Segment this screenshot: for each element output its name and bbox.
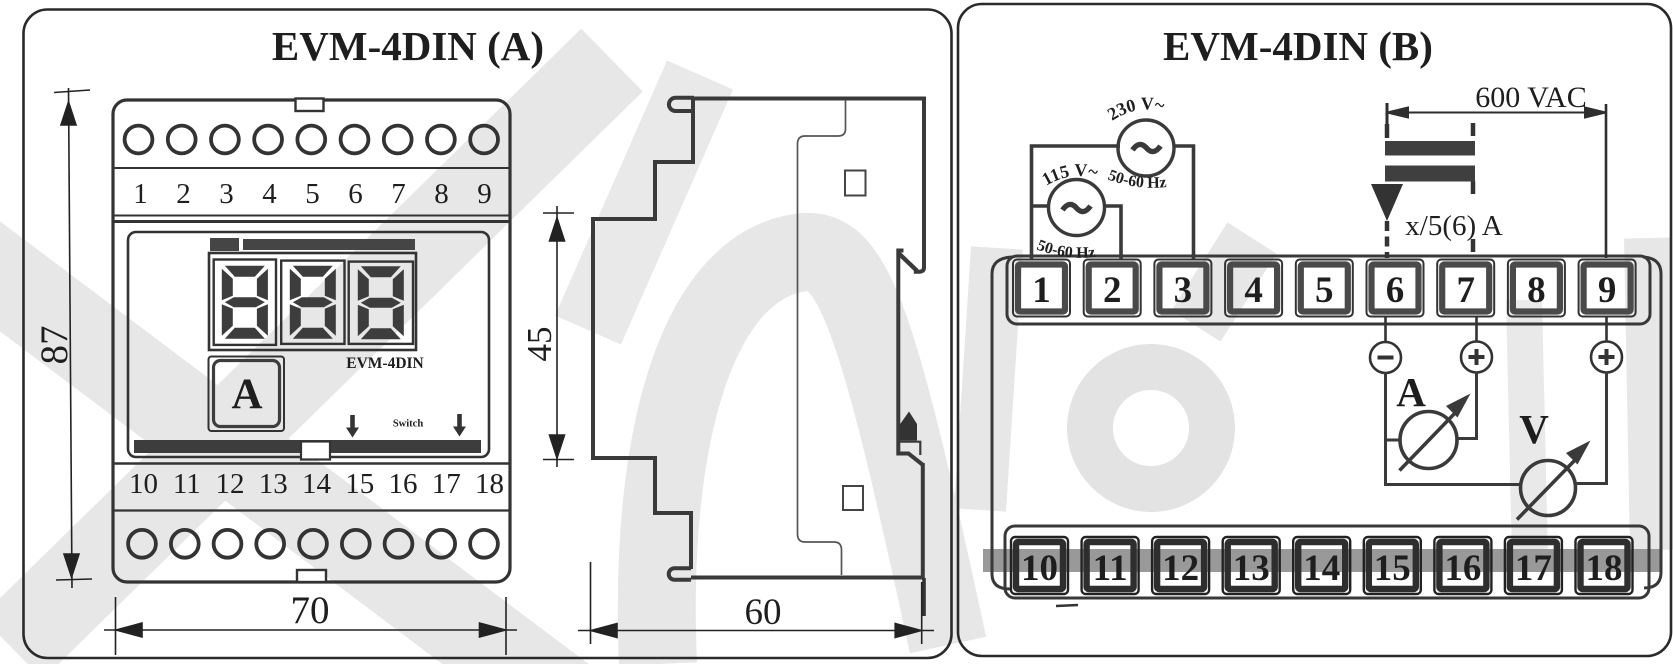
svg-text:11: 11 [1093, 548, 1128, 589]
svg-text:6: 6 [348, 178, 363, 210]
svg-text:1: 1 [1032, 270, 1051, 311]
svg-text:3: 3 [1174, 270, 1193, 311]
svg-text:87: 87 [33, 326, 76, 365]
svg-text:45: 45 [520, 327, 559, 362]
svg-text:4: 4 [1244, 270, 1263, 311]
svg-text:18: 18 [1586, 548, 1623, 589]
svg-text:16: 16 [1444, 548, 1481, 589]
svg-text:70: 70 [291, 589, 330, 632]
svg-text:6: 6 [1386, 270, 1405, 311]
svg-text:7: 7 [1456, 270, 1475, 311]
svg-text:7: 7 [391, 178, 406, 210]
svg-text:3: 3 [219, 178, 234, 210]
svg-text:14: 14 [302, 468, 332, 500]
svg-text:1: 1 [133, 178, 148, 210]
svg-text:A: A [231, 371, 262, 418]
svg-text:16: 16 [389, 468, 418, 500]
svg-text:600 VAC: 600 VAC [1475, 81, 1586, 114]
svg-text:12: 12 [1162, 548, 1199, 589]
svg-text:5: 5 [1315, 270, 1334, 311]
svg-text:V: V [1519, 406, 1549, 452]
svg-text:15: 15 [345, 468, 374, 500]
svg-text:14: 14 [1303, 548, 1340, 589]
svg-text:2: 2 [1103, 270, 1122, 311]
svg-text:60: 60 [745, 592, 782, 633]
svg-text:2: 2 [176, 178, 191, 210]
svg-text:18: 18 [475, 468, 504, 500]
svg-text:11: 11 [173, 468, 201, 500]
svg-text:17: 17 [1515, 548, 1552, 589]
svg-text:5: 5 [305, 178, 320, 210]
svg-text:10: 10 [1021, 548, 1058, 589]
svg-text:Switch: Switch [393, 419, 423, 430]
svg-text:EVM-4DIN (B): EVM-4DIN (B) [1163, 23, 1433, 69]
svg-text:EVM-4DIN: EVM-4DIN [346, 355, 424, 372]
svg-text:4: 4 [262, 178, 277, 210]
svg-text:10: 10 [129, 468, 158, 500]
svg-text:12: 12 [216, 468, 245, 500]
svg-text:A: A [1396, 369, 1426, 415]
svg-text:x/5(6) A: x/5(6) A [1405, 210, 1503, 242]
svg-text:13: 13 [1233, 548, 1270, 589]
svg-text:EVM-4DIN (A): EVM-4DIN (A) [272, 23, 544, 69]
svg-text:15: 15 [1374, 548, 1411, 589]
svg-text:8: 8 [1527, 270, 1546, 311]
svg-text:9: 9 [1598, 270, 1617, 311]
svg-text:8: 8 [434, 178, 449, 210]
svg-text:13: 13 [259, 468, 288, 500]
svg-text:9: 9 [477, 178, 492, 210]
svg-text:17: 17 [432, 468, 461, 500]
